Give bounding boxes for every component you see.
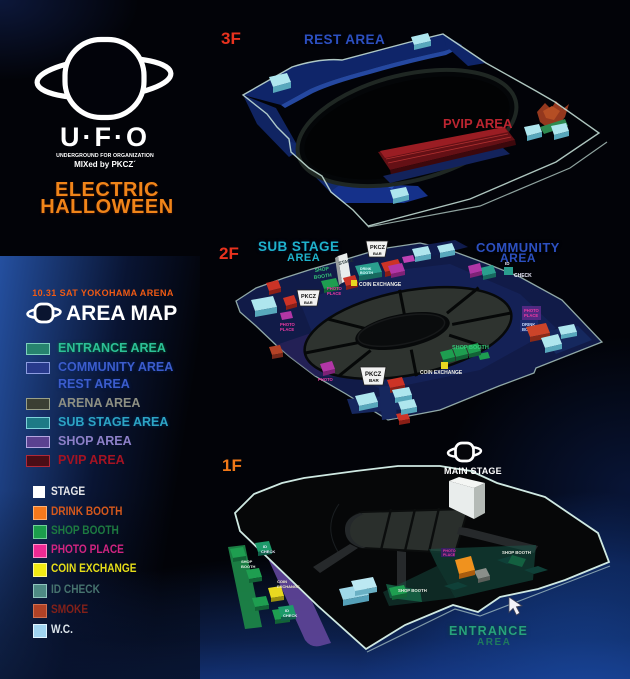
svg-text:BAR: BAR bbox=[304, 300, 313, 305]
svg-text:CHECK: CHECK bbox=[261, 549, 275, 554]
svg-text:SHOP BOOTH: SHOP BOOTH bbox=[502, 550, 531, 555]
svg-text:SHOP BOOTH: SHOP BOOTH bbox=[452, 345, 489, 351]
svg-text:COIN EXCHANGE: COIN EXCHANGE bbox=[420, 370, 463, 376]
svg-text:BOOTH: BOOTH bbox=[241, 564, 256, 569]
svg-text:CHECK: CHECK bbox=[514, 273, 532, 279]
svg-text:PLACE: PLACE bbox=[524, 313, 538, 318]
svg-text:BOOTH: BOOTH bbox=[360, 271, 373, 275]
svg-text:BAR: BAR bbox=[369, 378, 379, 383]
svg-text:PLACE: PLACE bbox=[280, 327, 294, 332]
svg-text:PLACE: PLACE bbox=[327, 291, 341, 296]
svg-text:SHOP BOOTH: SHOP BOOTH bbox=[398, 588, 427, 593]
svg-text:PLACE: PLACE bbox=[443, 553, 456, 557]
svg-text:PHOTO: PHOTO bbox=[318, 377, 334, 382]
svg-text:EXCHANGE: EXCHANGE bbox=[277, 584, 300, 589]
svg-text:COIN EXCHANGE: COIN EXCHANGE bbox=[359, 282, 402, 288]
svg-text:BAR: BAR bbox=[373, 251, 382, 256]
svg-text:CHECK: CHECK bbox=[283, 613, 297, 618]
